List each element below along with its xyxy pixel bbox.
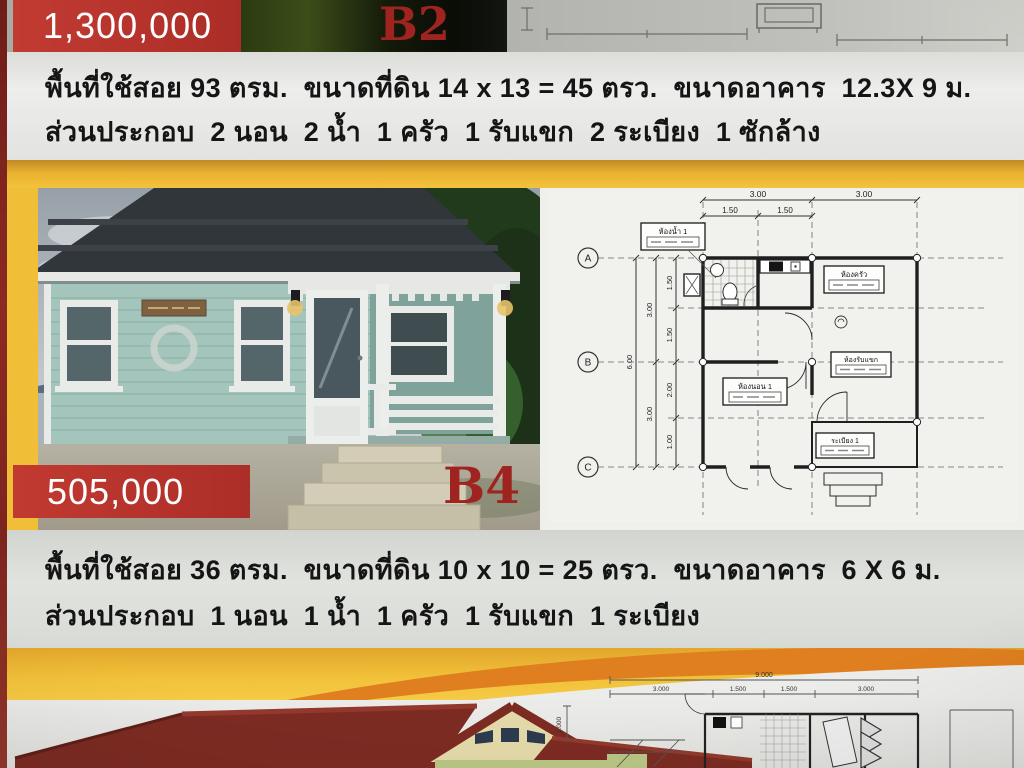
dim-left-total: 6.00 (625, 355, 634, 370)
divider-gold-top (7, 160, 1024, 188)
svg-text:ห้องครัว: ห้องครัว (841, 270, 867, 279)
listing-b2-strip: 1,300,000 B2 (7, 0, 1024, 52)
code-b4: B4 (443, 460, 520, 512)
wall-sign (142, 300, 206, 316)
listing-b4-section: 3.00 3.00 1.50 1.50 1.50 1.50 2.00 1.00 … (7, 188, 1024, 530)
dim-top-sub-1: 1.50 (722, 206, 738, 215)
bottom-plan-walls (610, 694, 918, 768)
dim-left-2: 1.50 (665, 328, 674, 343)
floorplan-fragment-bottom: 9.000 3.000 1.500 1.500 3.000 1.000 (555, 670, 1024, 768)
room-label-living: ห้องรับแขก (831, 352, 891, 377)
window-right (229, 300, 295, 392)
dim-left-mid-1: 3.00 (645, 303, 654, 318)
dim-bottom-sub-4: 3.000 (858, 686, 875, 693)
grid-bubble-c: C (584, 463, 591, 474)
dim-left-3: 2.00 (665, 383, 674, 398)
floorplan-b4: 3.00 3.00 1.50 1.50 1.50 1.50 2.00 1.00 … (548, 190, 1018, 522)
bottom-listing-section: 9.000 3.000 1.500 1.500 3.000 1.000 (7, 700, 1024, 768)
floorplan-b4-drawing: 3.00 3.00 1.50 1.50 1.50 1.50 2.00 1.00 … (548, 190, 1018, 522)
window-left (55, 300, 123, 392)
spec-b2-line1: พื้นที่ใช้สอย 93 ตรม. ขนาดที่ดิน 14 x 13… (45, 66, 971, 109)
spec-b4-line2: ส่วนประกอบ 1 นอน 1 น้ำ 1 ครัว 1 รับแขก 1… (45, 594, 700, 637)
price-banner-b2: 1,300,000 (13, 0, 241, 52)
price-banner-b4: 505,000 (13, 465, 250, 518)
dim-top-sub-2: 1.50 (777, 206, 793, 215)
room-label-bedroom: ห้องนอน 1 (723, 378, 787, 405)
svg-text:ห้องนอน 1: ห้องนอน 1 (738, 382, 772, 391)
page-edge-strip (0, 0, 7, 768)
dim-left-1: 1.50 (665, 276, 674, 291)
price-b2: 1,300,000 (13, 5, 212, 47)
svg-text:ระเบียง 1: ระเบียง 1 (831, 437, 859, 445)
spec-b2-line2: ส่วนประกอบ 2 นอน 2 น้ำ 1 ครัว 1 รับแขก 2… (45, 110, 821, 153)
brochure-page: 1,300,000 B2 พื้นที่ใช้สอย 93 ตรม. ขนาดท… (0, 0, 1024, 768)
grid-bubble-b: B (585, 358, 592, 369)
spec-b4-line1: พื้นที่ใช้สอย 36 ตรม. ขนาดที่ดิน 10 x 10… (45, 548, 941, 591)
grid-bubble-a: A (585, 254, 592, 265)
svg-text:ห้องน้ำ 1: ห้องน้ำ 1 (659, 226, 688, 236)
code-b2: B2 (379, 0, 450, 50)
dim-bottom-sub-1: 3.000 (653, 686, 670, 693)
plan-paper-fragment (507, 0, 1024, 52)
plan-fragment-graphic (507, 0, 1024, 52)
room-label-porch: ระเบียง 1 (816, 433, 874, 458)
dim-bottom-left: 1.000 (556, 716, 563, 733)
spec-band-b2: พื้นที่ใช้สอย 93 ตรม. ขนาดที่ดิน 14 x 13… (7, 52, 1024, 160)
svg-text:ห้องรับแขก: ห้องรับแขก (844, 356, 878, 364)
dim-left-mid-2: 3.00 (645, 407, 654, 422)
dim-top-overall-1: 3.00 (750, 190, 767, 199)
room-label-kitchen: ห้องครัว (824, 266, 884, 293)
dim-bottom-sub-3: 1.500 (781, 686, 798, 693)
dim-bottom-overall: 9.000 (755, 672, 773, 679)
house-photo-b2-fragment (241, 0, 507, 52)
kitchen-counter (760, 260, 810, 273)
dim-left-4: 1.00 (665, 435, 674, 450)
spec-band-b4: พื้นที่ใช้สอย 36 ตรม. ขนาดที่ดิน 10 x 10… (7, 530, 1024, 648)
dim-bottom-sub-2: 1.500 (730, 686, 747, 693)
dim-top-overall-2: 3.00 (856, 190, 873, 199)
front-door (306, 290, 368, 444)
price-b4: 505,000 (13, 471, 184, 513)
